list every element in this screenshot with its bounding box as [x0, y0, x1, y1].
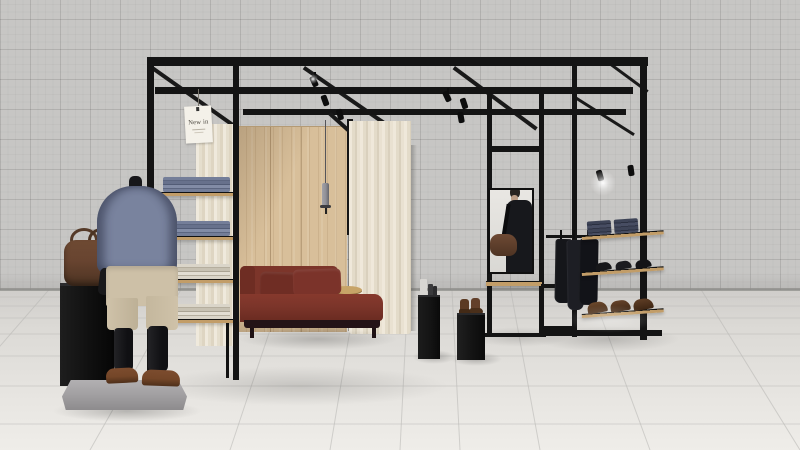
- mannequin-leg: [148, 326, 168, 372]
- pendant-cord: [325, 120, 326, 183]
- shorts-leg: [146, 296, 178, 330]
- tag-fine-print-line: [194, 132, 203, 133]
- tag-fine-print-line: [192, 129, 205, 131]
- products-plinth: [418, 295, 440, 359]
- new-in-tag: New in: [184, 105, 213, 143]
- folded-jeans-stack: [587, 220, 612, 236]
- brown-shoe: [106, 367, 139, 384]
- sofa-base-rail: [244, 320, 380, 328]
- post-left-inner: [233, 60, 239, 380]
- spotlight-glint: [308, 74, 318, 84]
- hanger-stem-icon: [573, 230, 575, 239]
- shorts-leg: [107, 298, 138, 330]
- mirror-top-bar: [487, 146, 544, 152]
- sofa-leg: [372, 328, 376, 338]
- mannequin-sweater: [97, 186, 177, 274]
- sofa-leg: [250, 328, 254, 338]
- mirror-base-bar: [484, 333, 546, 337]
- mirror-under-shelf: [486, 281, 542, 286]
- new-in-tag-label: New in: [185, 118, 212, 126]
- reflected-leather-bag: [490, 234, 517, 256]
- roof-beam-rear: [243, 109, 626, 115]
- mannequin-leg: [114, 328, 133, 372]
- grooming-product-bottle: [420, 279, 427, 296]
- pendant-light: [322, 183, 329, 207]
- store-scene: New in: [0, 0, 800, 450]
- brown-shoe: [142, 369, 181, 386]
- roof-beam-middle: [155, 87, 633, 94]
- mirror-frame: [488, 188, 534, 274]
- mirror-post-right: [539, 92, 544, 337]
- curtain-edge-shadow: [411, 145, 417, 331]
- tag-clip-icon: [196, 107, 199, 111]
- hanger-stem-icon: [560, 230, 562, 239]
- spotlight-floor-pool: [565, 305, 655, 333]
- folded-jeans-stack: [614, 218, 639, 234]
- pendant-tip: [325, 208, 327, 214]
- mirror-reflection: [490, 190, 532, 272]
- shelf-leg: [226, 323, 229, 378]
- sofa-cushion: [293, 268, 342, 296]
- sofa-seat: [240, 294, 383, 321]
- tag-string: [198, 89, 199, 107]
- folded-knitwear-stack: [163, 177, 230, 192]
- spotlight-glow: [590, 170, 616, 196]
- boots-plinth: [457, 313, 485, 360]
